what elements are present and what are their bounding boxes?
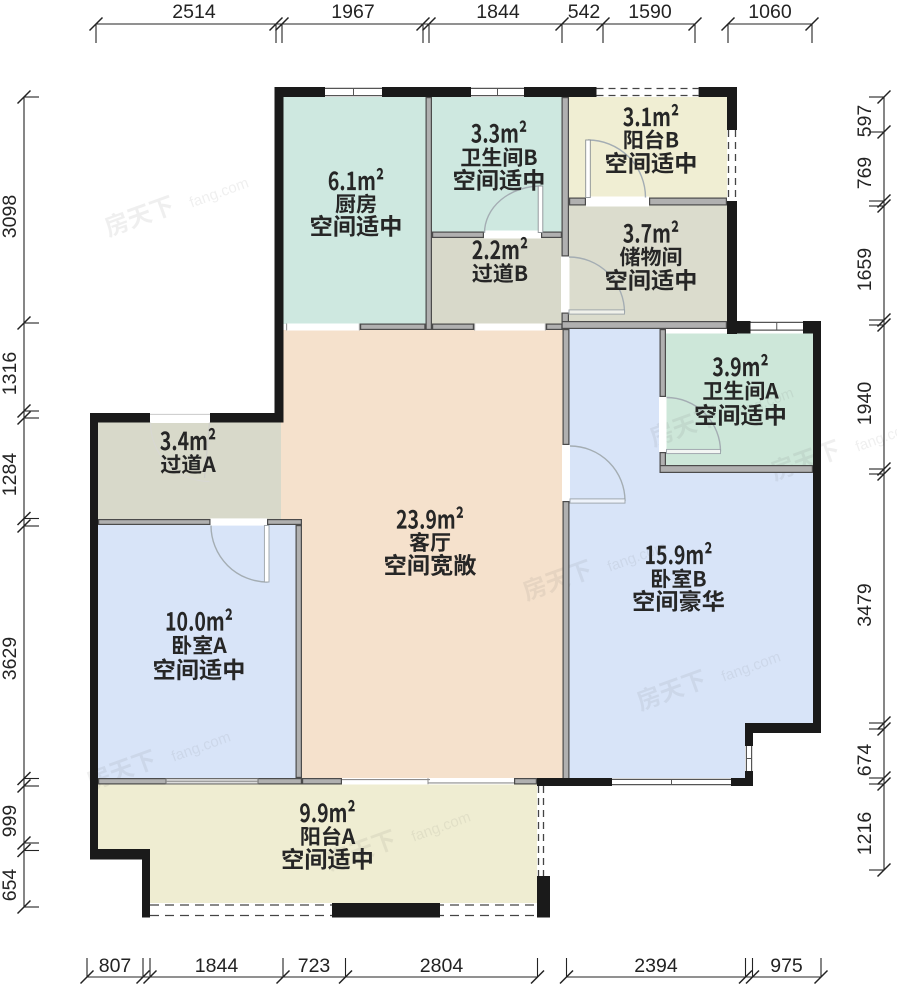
svg-text:1216: 1216 xyxy=(854,812,876,855)
svg-text:1316: 1316 xyxy=(0,352,21,395)
svg-text:1060: 1060 xyxy=(748,1,792,23)
svg-text:975: 975 xyxy=(770,955,803,977)
svg-text:1659: 1659 xyxy=(854,248,876,291)
svg-text:769: 769 xyxy=(854,157,876,190)
svg-text:1844: 1844 xyxy=(476,1,520,23)
svg-text:2394: 2394 xyxy=(634,955,678,977)
svg-text:654: 654 xyxy=(0,869,21,902)
svg-text:1967: 1967 xyxy=(331,1,374,23)
svg-text:1844: 1844 xyxy=(195,955,239,977)
svg-text:2804: 2804 xyxy=(420,955,464,977)
svg-text:999: 999 xyxy=(0,805,21,838)
svg-text:807: 807 xyxy=(99,955,132,977)
svg-text:2514: 2514 xyxy=(172,1,216,23)
svg-text:542: 542 xyxy=(568,1,601,23)
svg-text:597: 597 xyxy=(854,105,876,138)
svg-text:1590: 1590 xyxy=(628,1,672,23)
svg-text:3479: 3479 xyxy=(854,583,876,626)
svg-text:723: 723 xyxy=(298,955,331,977)
svg-text:1284: 1284 xyxy=(0,453,21,497)
svg-text:3629: 3629 xyxy=(0,637,21,680)
svg-text:3098: 3098 xyxy=(0,195,21,238)
svg-text:1940: 1940 xyxy=(854,382,876,426)
svg-text:674: 674 xyxy=(854,744,876,777)
